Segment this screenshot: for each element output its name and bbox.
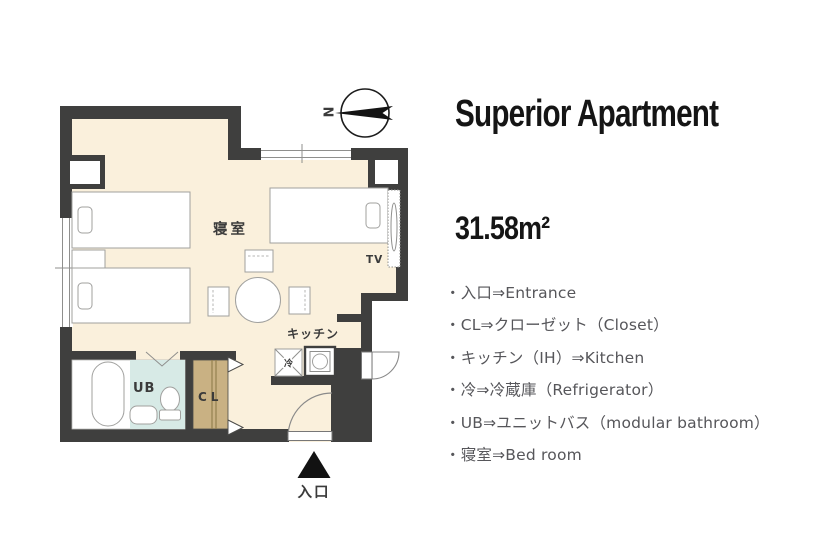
window-left-band <box>59 218 73 327</box>
legend-item-kitchen: ・キッチン（IH）⇒Kitchen <box>445 342 770 374</box>
floor-area: 31.58m² <box>455 210 567 247</box>
side-door-leaf <box>362 352 373 379</box>
legend-item-unit-bath: ・UB⇒ユニットバス（modular bathroom） <box>445 407 770 439</box>
floor-area-text: 31.58m² <box>455 210 549 247</box>
wall-bath-cl-divider <box>185 351 193 431</box>
kitchen-label: キッチン <box>287 327 339 341</box>
legend-item-entrance: ・入口⇒Entrance <box>445 277 770 309</box>
entrance-door-leaf <box>288 432 332 441</box>
refrigerator-label: 冷 <box>284 358 293 370</box>
chair-top <box>245 250 273 272</box>
compass: N <box>320 89 394 137</box>
toilet-tank <box>160 410 181 420</box>
floor-plan: UB CL 冷 キッチン <box>0 0 445 560</box>
toilet-bowl <box>161 387 180 411</box>
wall-right-mid <box>361 293 372 355</box>
dining-table <box>236 278 281 323</box>
tv-label: TV <box>366 254 383 266</box>
bedroom-label: 寝室 <box>213 220 248 238</box>
compass-north-label: N <box>320 107 335 118</box>
tv-set <box>391 203 397 251</box>
side-door-swing <box>372 352 399 379</box>
bathtub <box>92 362 124 426</box>
wall-left-lower <box>60 327 72 437</box>
entrance-marker: 入口 <box>298 451 331 501</box>
wall-top-step <box>228 106 241 154</box>
bathroom: UB <box>72 352 185 429</box>
wall-left-upper <box>60 106 72 155</box>
wall-left-mid <box>60 189 72 218</box>
bed-2-pillow <box>78 283 92 309</box>
wall-bottom <box>60 429 289 442</box>
legend-item-refrigerator: ・冷⇒冷蔵庫（Refrigerator） <box>445 374 770 406</box>
entrance-label: 入口 <box>298 484 331 501</box>
chair-left <box>208 287 229 316</box>
page: UB CL 冷 キッチン <box>0 0 820 560</box>
legend-list: ・入口⇒Entrance ・CL⇒クローゼット（Closet） ・キッチン（IH… <box>445 277 770 471</box>
wall-kitchen-stub <box>337 314 363 322</box>
wall-top-right-a <box>228 148 261 160</box>
kitchen-burner <box>313 354 328 369</box>
window-top-band <box>261 147 351 160</box>
legend-item-bedroom: ・寝室⇒Bed room <box>445 439 770 471</box>
niche-left <box>70 161 100 184</box>
wall-top-left <box>60 106 241 119</box>
entrance-arrow-icon <box>298 451 331 478</box>
unit-bath-label: UB <box>133 381 155 396</box>
page-title-text: Superior Apartment <box>455 93 718 136</box>
legend-item-closet: ・CL⇒クローゼット（Closet） <box>445 309 770 341</box>
bed-1-pillow <box>78 207 92 233</box>
wall-bath-top-a <box>60 351 136 360</box>
nightstand <box>72 250 105 268</box>
page-title: Superior Apartment <box>455 93 792 136</box>
bathroom-sink <box>130 406 157 424</box>
niche-right <box>375 160 398 184</box>
wall-kitchen-counter <box>271 376 337 385</box>
closet-label: CL <box>198 390 222 404</box>
bed-3-pillow <box>366 203 380 228</box>
chair-right <box>289 287 310 314</box>
